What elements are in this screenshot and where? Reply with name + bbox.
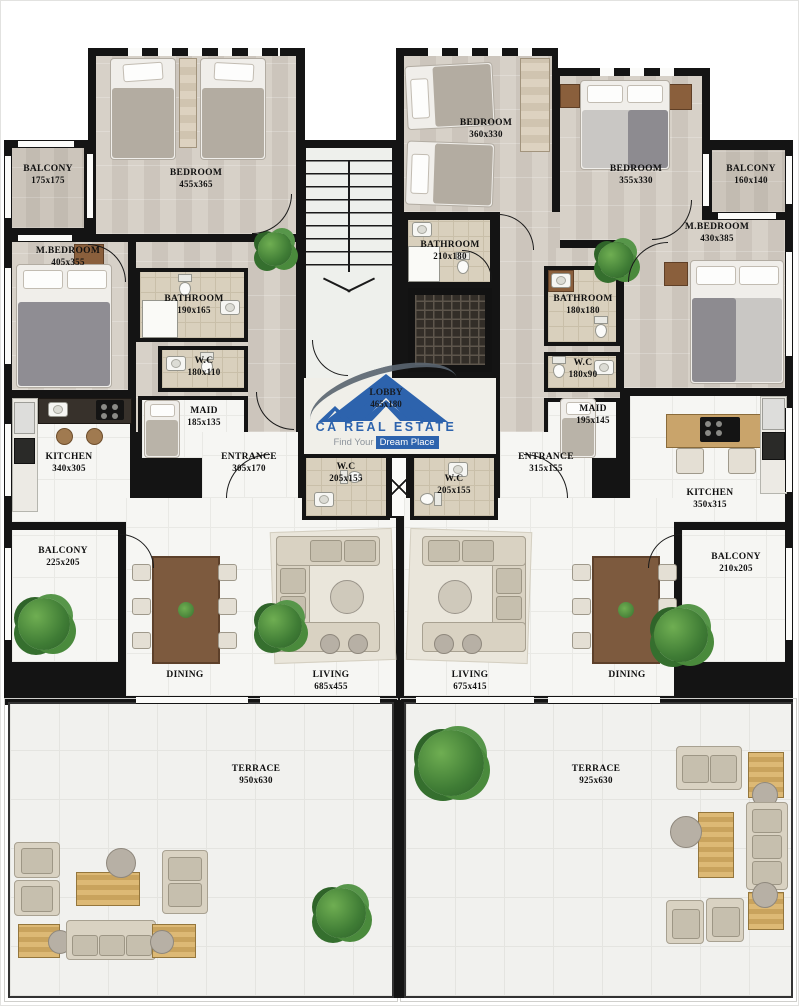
elevator [408,288,492,372]
label-right-kitchen: KITCHEN 350x315 [658,488,762,510]
outdoor-sofa [162,850,208,914]
label-left-kitchen: KITCHEN 340x305 [10,452,128,474]
room-dims: 175x175 [6,175,90,186]
window [18,140,74,148]
room-name: BEDROOM [146,168,246,179]
dining-chair [572,632,591,649]
coffee-table [438,580,472,614]
label-left-wc: W.C 180x110 [160,356,248,378]
room-name: BEDROOM [586,164,686,175]
label-right-bedroom-a: BEDROOM 360x330 [436,118,536,140]
room-dims: 430x385 [658,233,776,244]
tree [418,730,484,796]
room-name: W.C [302,462,390,473]
seat-cushion [168,883,202,907]
label-right-living: LIVING 675x415 [420,670,520,692]
label-right-terrace: TERRACE 925x630 [540,764,652,786]
room-dims: 685x455 [282,681,380,692]
toilet [594,316,608,338]
bed-pillow [122,62,163,83]
double-bed [580,80,670,170]
bed-pillow [739,266,779,285]
bar-stool [56,428,73,445]
coffee-table [330,580,364,614]
room-dims: 185x135 [150,417,258,428]
sofa-cushion [310,540,342,562]
label-right-wc-front: W.C 205x155 [410,474,498,496]
brand-name: CA REAL ESTATE [300,420,472,434]
outdoor-sofa [66,920,156,960]
label-left-maid: MAID 185x135 [150,406,258,428]
sofa-cushion [496,596,522,620]
window [785,408,793,492]
room-dims: 360x330 [436,129,536,140]
label-left-living: LIVING 685x455 [282,670,380,692]
outdoor-sofa [746,802,788,890]
pouf [320,634,340,654]
outdoor-sofa [676,746,742,790]
single-bed [110,58,176,160]
seat-cushion [710,755,737,783]
room-dims: 190x165 [140,305,248,316]
room-name: BATHROOM [544,294,622,305]
dining-chair [132,632,151,649]
room-name: MAID [150,406,258,417]
room-name: DINING [578,670,676,681]
outdoor-armchair [14,842,60,878]
outdoor-table [76,872,140,906]
cooktop [700,417,740,442]
room-name: MAID [554,404,632,415]
room-name: W.C [544,358,622,369]
bed-blanket [433,143,493,205]
window [4,268,12,364]
tagline-prefix: Find Your [333,437,373,448]
room-dims: 210x180 [405,251,495,262]
dining-chair [132,598,151,615]
room-name: TERRACE [200,764,312,775]
label-right-balcony-top: BALCONY 160x140 [709,164,793,186]
tagline-highlight: Dream Place [376,436,439,449]
seat-cushion [21,886,53,912]
label-right-dining: DINING [578,670,676,681]
room-name: BATHROOM [405,240,495,251]
bed-throw [628,110,668,168]
island-stool [676,448,704,474]
room-dims: 465x180 [300,399,472,409]
toilet [178,274,192,296]
outdoor-armchair [14,880,60,916]
room-dims: 160x140 [709,175,793,186]
outdoor-table [698,812,734,878]
label-left-bedroom: BEDROOM 455x365 [146,168,246,190]
label-left-mbedroom: M.BEDROOM 405x355 [10,246,126,268]
fridge [762,398,785,430]
bed-pillow [587,85,623,103]
bed-blanket [202,88,264,158]
outdoor-stool [752,882,778,908]
floor-plan: BEDROOM 455x365 BALCONY 175x175 M.BEDROO… [0,0,799,1006]
room-dims: 350x315 [658,499,762,510]
label-left-balcony-mid: BALCONY 225x205 [10,546,116,568]
room-name: LIVING [282,670,380,681]
pouf [462,634,482,654]
seat-cushion [168,857,202,881]
label-right-maid: MAID 195x145 [554,404,632,426]
outdoor-armchair [666,900,704,944]
bathroom-sink [412,222,432,237]
seat-cushion [72,935,98,956]
seat-cushion [752,809,782,833]
room-name: LOBBY [369,388,402,398]
bed-pillow [214,62,255,82]
seat-cushion [21,848,53,874]
sliding-door [136,696,248,704]
sofa-cushion [280,568,306,594]
outdoor-pouf [670,816,702,848]
window [785,252,793,356]
wardrobe [179,58,197,148]
terrace-divider-wall [394,700,404,998]
room-name: ENTRANCE [200,452,298,463]
oven [762,432,785,460]
room-name: KITCHEN [658,488,762,499]
pouf [348,634,368,654]
room-name: W.C [410,474,498,485]
label-left-terrace: TERRACE 950x630 [200,764,312,786]
window [112,48,280,56]
label-right-bathroom-b: BATHROOM 180x180 [544,294,622,316]
bed-pillow [410,154,429,195]
single-bed [200,58,266,160]
seat-cushion [126,935,152,956]
room-name: LIVING [420,670,520,681]
bed-blanket [18,302,110,386]
room-name: BALCONY [10,546,116,557]
room-dims: 195x145 [554,415,632,426]
nightstand [560,84,580,108]
room-name: BALCONY [6,164,90,175]
seat-cushion [682,755,709,783]
room-dims: 455x365 [146,179,246,190]
room-name: M.BEDROOM [658,222,776,233]
bar-stool [86,428,103,445]
sofa-cushion [462,540,494,562]
nightstand [668,84,692,110]
single-bed [405,140,495,207]
room-name: BATHROOM [140,294,248,305]
seat-cushion [672,909,700,939]
label-right-bedroom-b: BEDROOM 355x330 [586,164,686,186]
brand-tagline: Find YourDream Place [300,437,472,448]
window [412,48,532,56]
label-lobby: LOBBY 465x180 [300,388,472,409]
sliding-door [416,696,534,704]
outdoor-armchair [706,898,744,942]
room-dims: 340x305 [10,463,128,474]
room-name: ENTRANCE [498,452,594,463]
label-left-balcony-top: BALCONY 175x175 [6,164,90,186]
cooktop [96,400,124,420]
bed-pillow [696,266,736,285]
room-dims: 305x170 [200,463,298,474]
wc-sink [314,492,334,507]
room-dims: 315x155 [498,463,594,474]
seat-cushion [752,835,782,859]
room-name: M.BEDROOM [10,246,126,257]
label-left-wc-front: W.C 205x155 [302,462,390,484]
room-name: W.C [160,356,248,367]
sofa-cushion [496,568,522,594]
room-left-balcony-top-floor [12,148,84,228]
dining-table [152,556,220,664]
room-dims: 925x630 [540,775,652,786]
kitchen-sink [48,402,68,417]
label-left-bathroom: BATHROOM 190x165 [140,294,248,316]
bathroom-sink [551,273,571,288]
outdoor-stool [150,930,174,954]
pouf [434,634,454,654]
bed-pillow [627,85,663,103]
room-dims: 205x155 [302,473,390,484]
label-right-bathroom-a: BATHROOM 210x180 [405,240,495,262]
room-dims: 210x205 [684,563,788,574]
bed-throw [692,298,736,382]
sliding-door [260,696,380,704]
island-stool [728,448,756,474]
label-right-balcony-mid: BALCONY 210x205 [684,552,788,574]
room-dims: 180x90 [544,369,622,380]
sofa-cushion [344,540,376,562]
plant [18,598,70,650]
window [718,212,776,220]
room-dims: 225x205 [10,557,116,568]
plant [654,608,708,662]
room-dims: 405x355 [10,257,126,268]
room-dims: 205x155 [410,485,498,496]
bed-pillow [23,270,63,289]
dining-chair [218,632,237,649]
room-name: BEDROOM [436,118,536,129]
label-right-mbedroom: M.BEDROOM 430x385 [658,222,776,244]
dining-table [592,556,660,664]
bed-pillow [410,78,430,119]
plant [258,604,302,648]
window [18,234,72,242]
dining-chair [572,598,591,615]
dining-chair [218,564,237,581]
room-dims: 180x180 [544,305,622,316]
label-left-entrance: ENTRANCE 305x170 [200,452,298,474]
plant [258,232,292,266]
room-dims: 950x630 [200,775,312,786]
sofa-cushion [428,540,460,562]
label-right-entrance: ENTRANCE 315x155 [498,452,594,474]
seat-cushion [99,935,125,956]
room-name: DINING [136,670,234,681]
stair-arrow-right [347,278,375,293]
bed-blanket [112,88,174,158]
room-name: BALCONY [709,164,793,175]
outdoor-pouf [106,848,136,878]
fridge [14,402,35,434]
room-name: TERRACE [540,764,652,775]
dining-chair [572,564,591,581]
sliding-door [548,696,660,704]
brand-logo: LOBBY 465x180 CA REAL ESTATE Find YourDr… [300,366,472,452]
room-dims: 180x110 [160,367,248,378]
window [584,68,680,76]
double-bed [16,264,112,388]
stair-divider [348,160,350,272]
double-bed [690,260,784,384]
room-name: BALCONY [684,552,788,563]
room-dims: 355x330 [586,175,686,186]
dining-chair [218,598,237,615]
label-right-wc: W.C 180x90 [544,358,622,380]
room-name: KITCHEN [10,452,128,463]
seat-cushion [712,907,740,937]
staircase [306,148,392,314]
label-left-dining: DINING [136,670,234,681]
room-dims: 675x415 [420,681,520,692]
bush [316,888,366,938]
